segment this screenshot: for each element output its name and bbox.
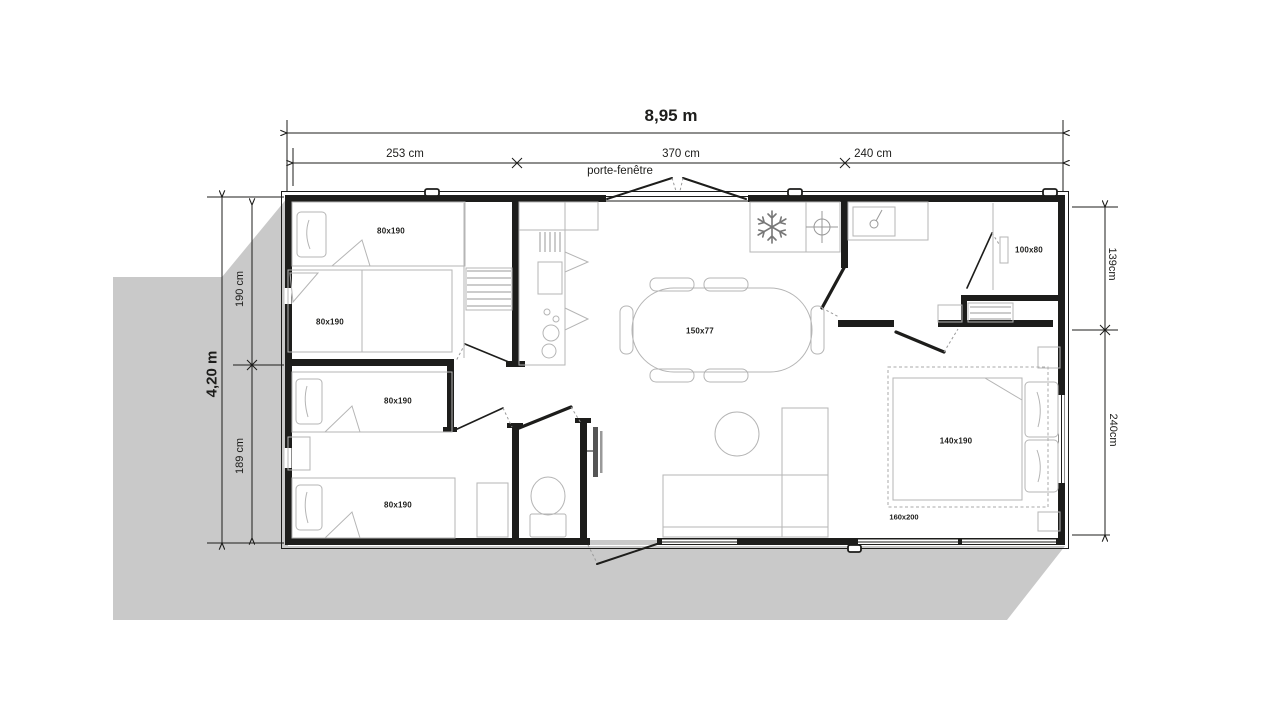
toilet <box>530 477 566 537</box>
segment-240r-label: 240cm <box>1107 413 1119 446</box>
vent-icon <box>1043 189 1057 196</box>
double-bed-size-label: 140x190 <box>940 437 973 446</box>
chair <box>650 369 694 382</box>
bed2-size-label: 80x190 <box>316 318 344 327</box>
burner <box>542 344 556 358</box>
bed1-size-label: 80x190 <box>377 227 405 236</box>
master-bedroom-door-leaf <box>896 332 944 352</box>
vent-icon <box>848 545 861 552</box>
nightstand <box>1038 347 1060 368</box>
vent-icon <box>788 189 802 196</box>
fridge <box>750 202 806 252</box>
crosshair-icon <box>806 211 838 243</box>
water-heater <box>806 202 840 252</box>
bed-single-4 <box>292 478 455 538</box>
overall-depth-label: 4,20 m <box>204 351 221 398</box>
ground-shadow <box>113 197 1065 620</box>
doors <box>455 178 999 564</box>
closet <box>477 483 508 537</box>
segment-189-label: 189 cm <box>234 438 246 474</box>
master-bedroom-shelves <box>938 303 1013 322</box>
bedroom2-door-leaf <box>455 408 503 430</box>
floorplan-page: 8,95 m 253 cm 370 cm 240 cm porte-fenêtr… <box>0 0 1280 717</box>
floor-plan-drawing <box>0 0 1280 717</box>
bedroom1-door-leaf <box>465 344 511 363</box>
segment-240-label: 240 cm <box>854 148 892 160</box>
chair <box>704 369 748 382</box>
wardrobe-shelves <box>464 203 512 358</box>
double-bed-base-size-label: 160x200 <box>889 513 918 522</box>
furniture <box>288 202 1060 538</box>
bed-double <box>888 347 1060 531</box>
bed-single-2 <box>288 270 452 352</box>
burner <box>543 325 559 341</box>
oven <box>538 262 562 294</box>
segment-370-label: 370 cm <box>662 148 700 160</box>
interior-walls <box>285 195 1065 538</box>
shower-door-leaf <box>967 233 992 288</box>
tv-screen <box>587 427 603 477</box>
sofa <box>663 408 828 537</box>
chair <box>704 278 748 291</box>
bed4-size-label: 80x190 <box>384 501 412 510</box>
tap-icon <box>870 210 882 228</box>
dining-table-size-label: 150x77 <box>686 327 714 336</box>
overall-width-label: 8,95 m <box>645 106 698 126</box>
segment-190-label: 190 cm <box>234 271 246 307</box>
exterior-walls <box>285 195 1065 545</box>
building-outline <box>282 192 1069 549</box>
french-door-right-leaf <box>683 178 746 199</box>
chair <box>811 306 824 354</box>
segment-253-label: 253 cm <box>386 148 424 160</box>
segment-139-label: 139cm <box>1106 247 1118 280</box>
shower <box>993 203 1008 290</box>
dining-table <box>620 278 824 382</box>
bed3-size-label: 80x190 <box>384 397 412 406</box>
wall-vents <box>425 189 1057 552</box>
nightstand <box>1038 512 1060 531</box>
kitchen-block <box>519 202 598 365</box>
vent-icon <box>425 189 439 196</box>
french-door-label: porte-fenêtre <box>587 165 653 177</box>
washbasin <box>848 202 928 240</box>
bathroom-door-leaf <box>822 266 845 308</box>
shower-size-label: 100x80 <box>1015 246 1043 255</box>
side-table <box>715 412 759 456</box>
chair <box>650 278 694 291</box>
french-door-left-leaf <box>607 178 672 199</box>
snowflake-icon <box>756 211 788 243</box>
chair <box>620 306 633 354</box>
wc-door-leaf <box>519 407 571 428</box>
bed-single-3 <box>292 372 452 432</box>
